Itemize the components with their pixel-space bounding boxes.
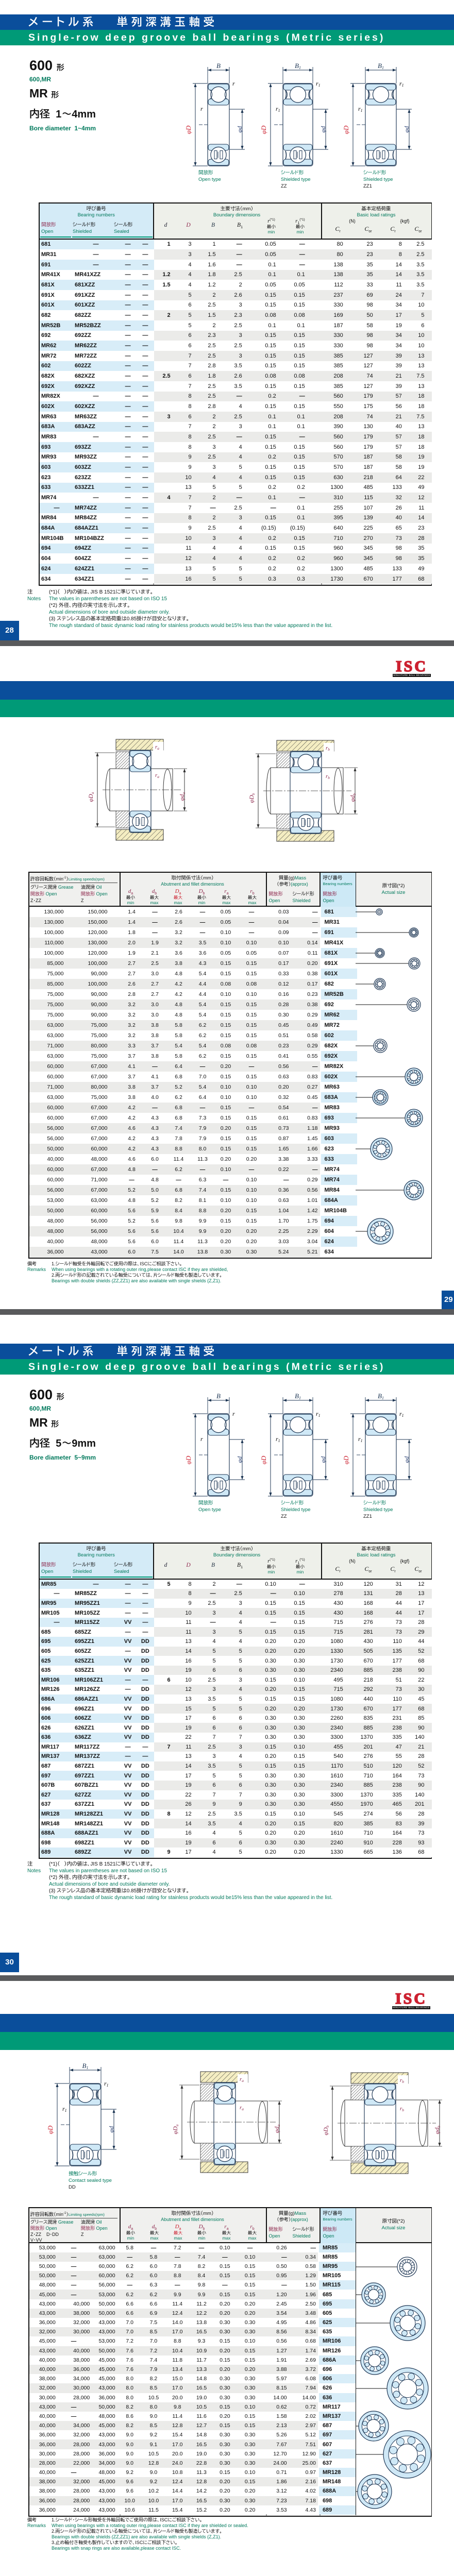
svg-text:r: r	[200, 105, 203, 112]
svg-text:r1: r1	[358, 1435, 363, 1443]
svg-text:r1: r1	[276, 1435, 280, 1443]
svg-text:B: B	[216, 1392, 221, 1400]
svg-text:φD: φD	[184, 125, 192, 134]
svg-text:φD: φD	[342, 125, 350, 134]
svg-text:r: r	[232, 80, 235, 87]
svg-text:φda: φda	[273, 2125, 281, 2133]
svg-text:r: r	[232, 1410, 235, 1417]
svg-text:r1: r1	[316, 80, 321, 88]
svg-text:B1: B1	[295, 62, 301, 70]
svg-text:φDa: φDa	[87, 792, 95, 802]
svg-text:r1: r1	[399, 1410, 404, 1418]
svg-text:r: r	[200, 1435, 203, 1443]
svg-text:r1: r1	[316, 1410, 321, 1418]
svg-text:φdb: φdb	[349, 793, 357, 802]
svg-text:B1: B1	[378, 1392, 384, 1400]
svg-text:φD: φD	[342, 1455, 350, 1464]
svg-text:φD: φD	[260, 1455, 267, 1464]
svg-text:φda: φda	[178, 792, 186, 801]
svg-text:B: B	[216, 62, 221, 70]
svg-text:φD: φD	[260, 125, 267, 134]
svg-text:φdb: φdb	[433, 2126, 441, 2134]
svg-text:r1: r1	[358, 105, 363, 113]
svg-text:φd: φd	[236, 126, 243, 133]
svg-text:φd: φd	[403, 1456, 410, 1463]
svg-text:φd: φd	[236, 1456, 243, 1463]
svg-text:B1: B1	[295, 1392, 301, 1400]
svg-text:r1: r1	[276, 105, 280, 113]
svg-text:r1: r1	[399, 80, 404, 88]
svg-text:φd: φd	[403, 126, 410, 133]
svg-text:φDb: φDb	[322, 2125, 330, 2135]
svg-text:φDb: φDb	[248, 793, 256, 803]
svg-text:φd: φd	[320, 1456, 327, 1463]
svg-text:φd: φd	[320, 126, 327, 133]
svg-text:φDa: φDa	[172, 2124, 179, 2134]
svg-text:B1: B1	[378, 62, 384, 70]
svg-text:φD: φD	[184, 1455, 192, 1464]
